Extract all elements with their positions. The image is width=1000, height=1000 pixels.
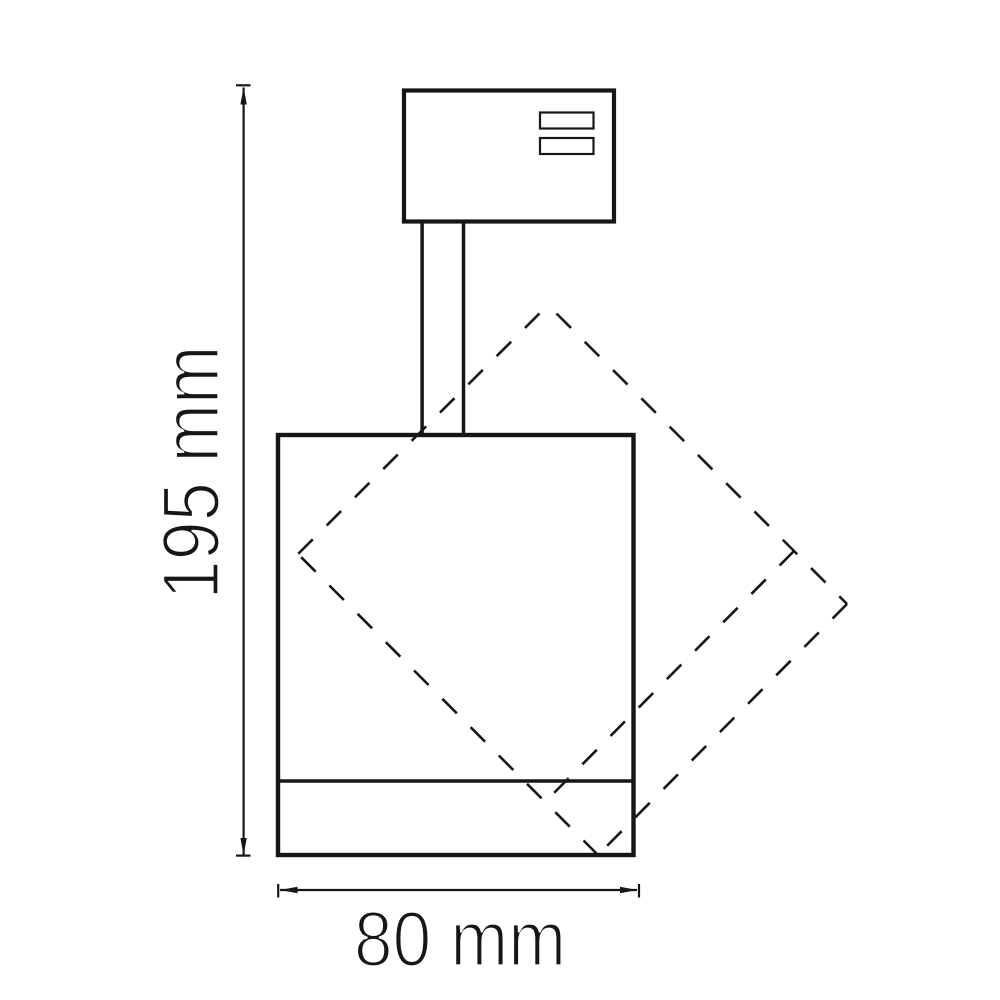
svg-text:195 mm: 195 mm (147, 346, 237, 600)
svg-text:80 mm: 80 mm (354, 895, 566, 983)
